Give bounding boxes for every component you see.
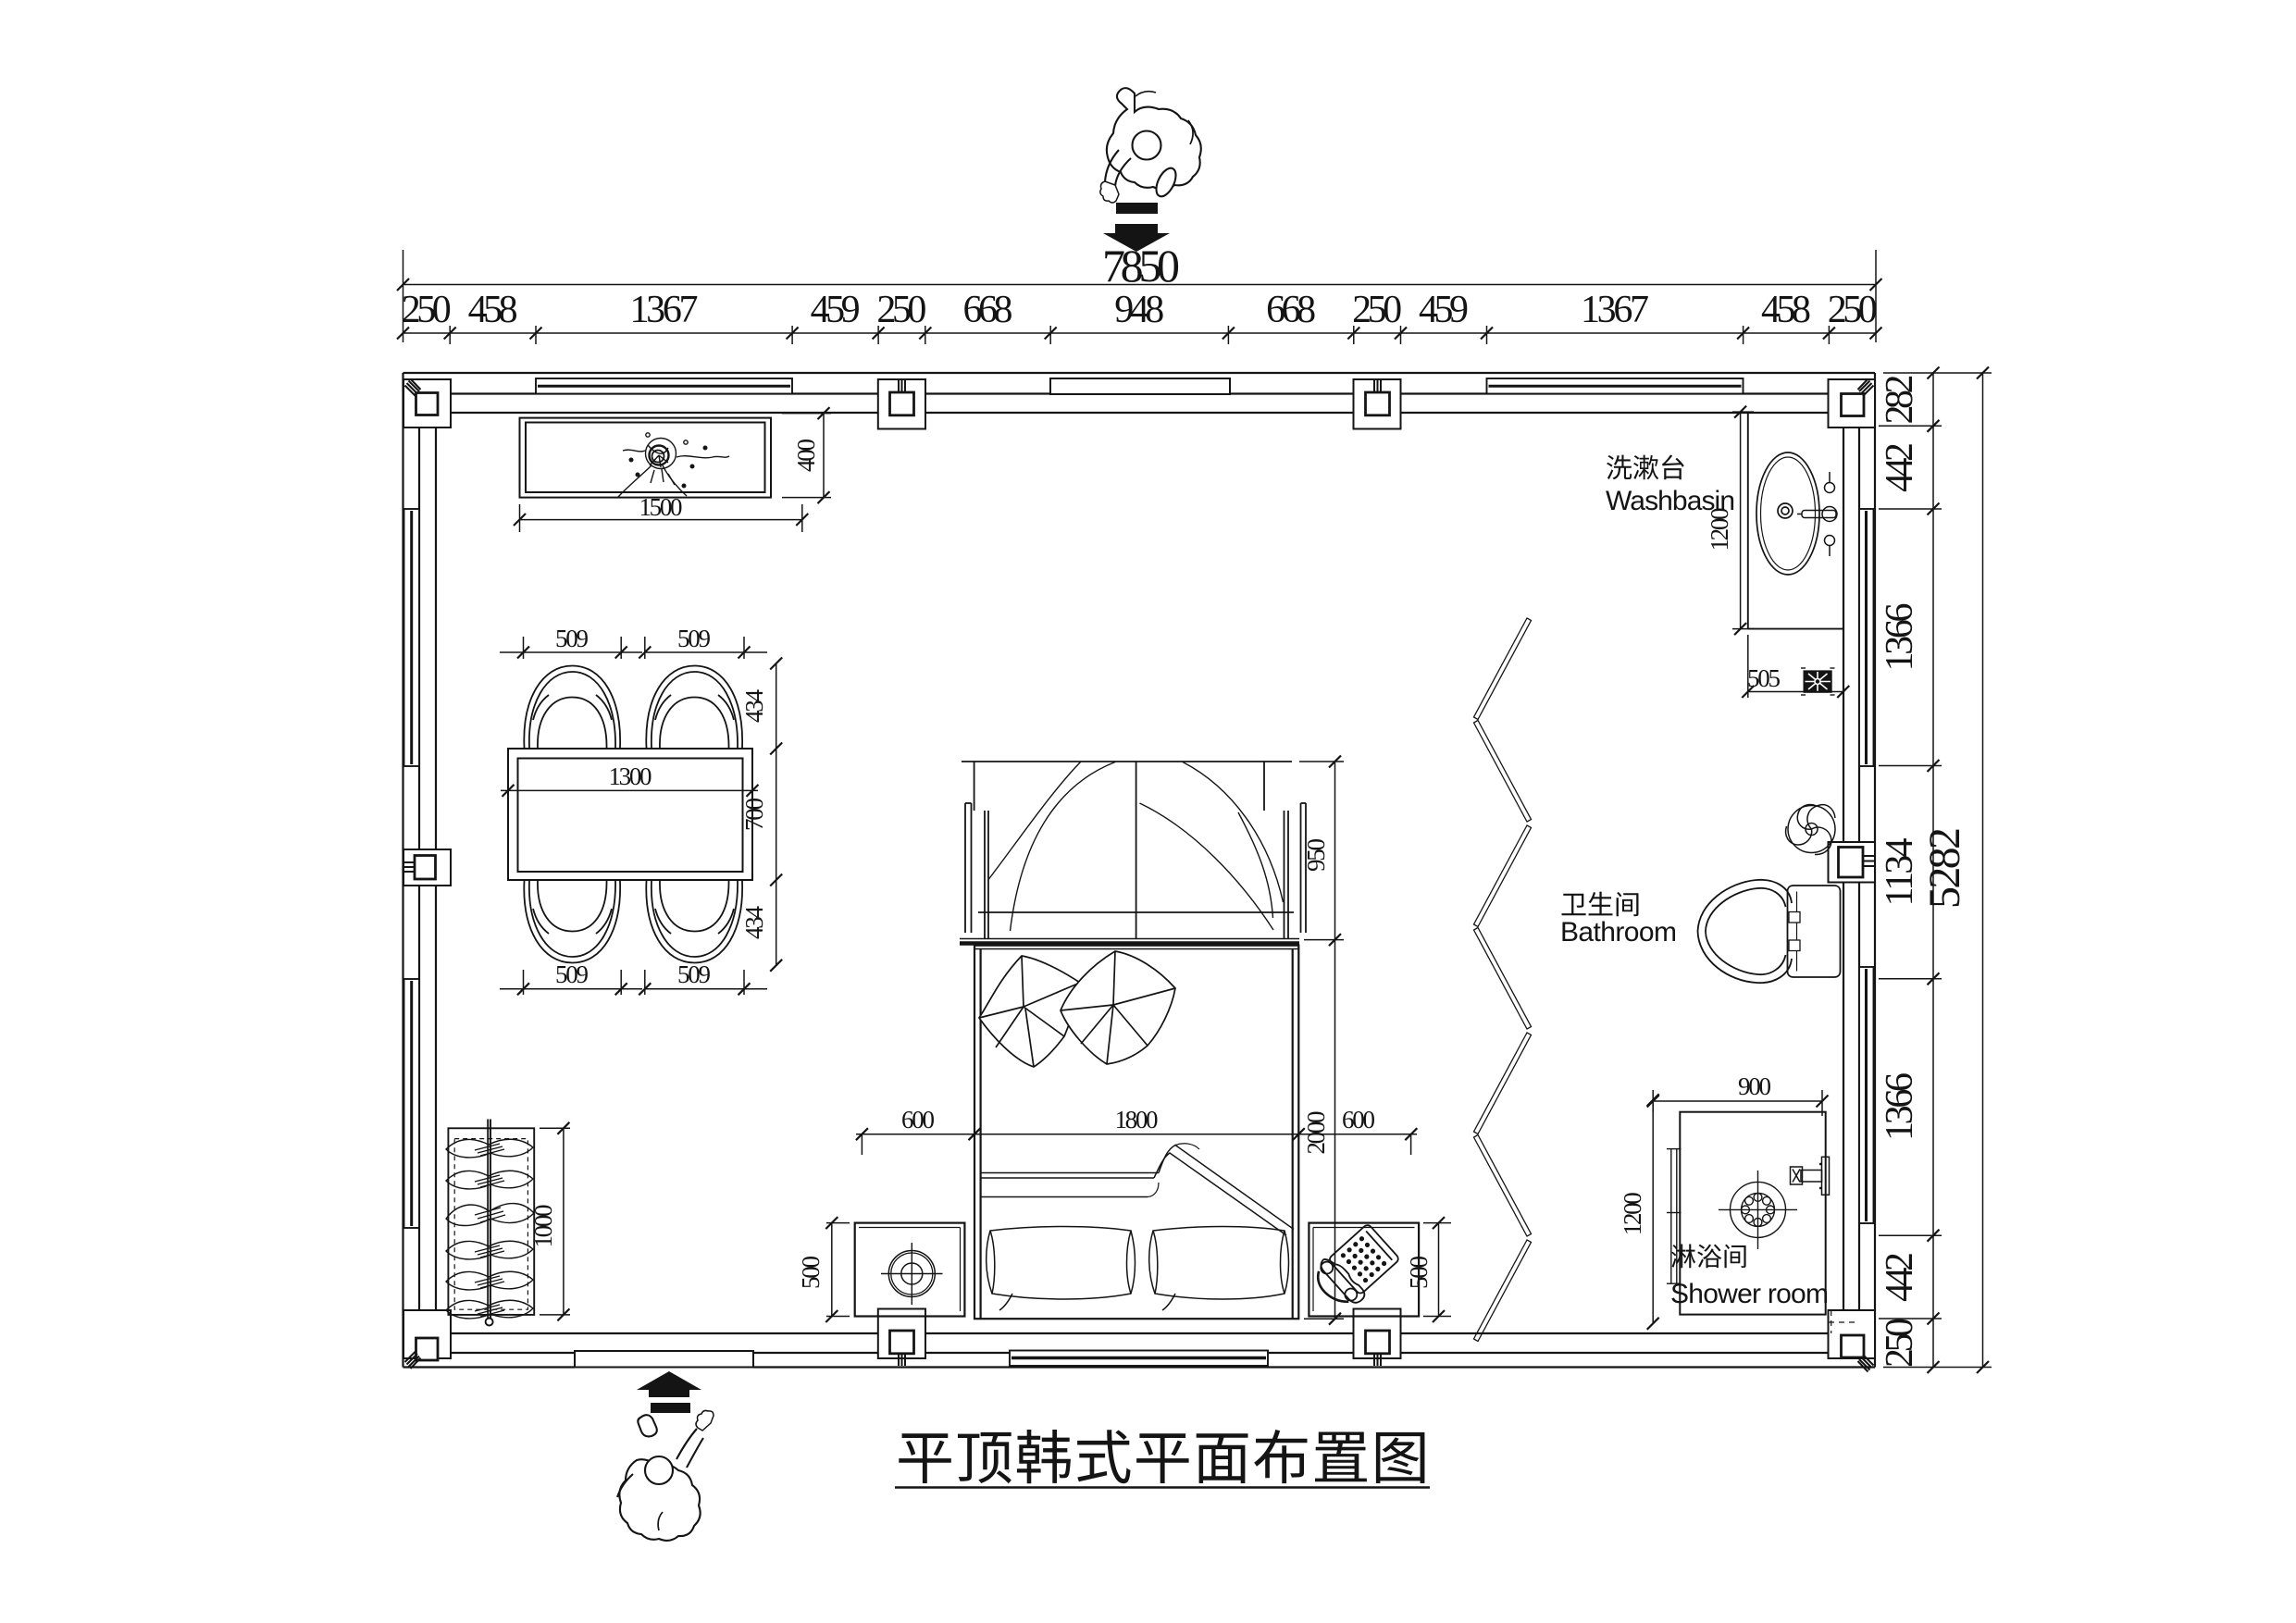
svg-text:1366: 1366: [1879, 603, 1921, 672]
svg-text:442: 442: [1879, 442, 1921, 492]
svg-text:459: 459: [1419, 289, 1469, 331]
svg-text:948: 948: [1114, 289, 1164, 331]
svg-text:250: 250: [876, 289, 926, 331]
svg-text:509: 509: [555, 960, 589, 988]
svg-text:600: 600: [1342, 1106, 1375, 1134]
svg-text:500: 500: [1405, 1256, 1433, 1289]
svg-text:250: 250: [1879, 1318, 1921, 1368]
svg-text:250: 250: [1828, 289, 1878, 331]
svg-text:250: 250: [402, 289, 452, 331]
svg-text:1800: 1800: [1115, 1106, 1159, 1134]
svg-text:1200: 1200: [1619, 1192, 1646, 1235]
svg-text:442: 442: [1879, 1252, 1921, 1302]
svg-text:434: 434: [740, 906, 768, 940]
svg-text:Shower room: Shower room: [1670, 1279, 1829, 1309]
svg-text:1366: 1366: [1879, 1072, 1921, 1141]
svg-text:250: 250: [1352, 289, 1402, 331]
svg-text:434: 434: [740, 689, 768, 724]
svg-text:1367: 1367: [1581, 289, 1649, 331]
svg-text:668: 668: [963, 289, 1013, 331]
svg-text:505: 505: [1747, 664, 1781, 692]
svg-text:459: 459: [811, 289, 861, 331]
svg-text:1367: 1367: [630, 289, 699, 331]
svg-text:500: 500: [797, 1256, 825, 1289]
svg-text:458: 458: [1761, 289, 1811, 331]
svg-text:600: 600: [901, 1106, 935, 1134]
svg-text:1300: 1300: [609, 762, 652, 790]
svg-text:458: 458: [468, 289, 518, 331]
svg-text:950: 950: [1302, 838, 1330, 872]
svg-text:1500: 1500: [639, 493, 683, 521]
svg-text:900: 900: [1738, 1072, 1771, 1100]
svg-text:509: 509: [555, 625, 589, 652]
svg-text:282: 282: [1879, 375, 1921, 425]
svg-text:Washbasin: Washbasin: [1606, 486, 1735, 516]
svg-text:668: 668: [1266, 289, 1316, 331]
svg-text:509: 509: [677, 625, 711, 652]
svg-text:5282: 5282: [1920, 827, 1969, 909]
svg-text:400: 400: [792, 439, 820, 472]
svg-text:1134: 1134: [1879, 838, 1921, 907]
svg-text:Bathroom: Bathroom: [1560, 917, 1677, 948]
svg-text:2000: 2000: [1302, 1111, 1330, 1155]
svg-text:509: 509: [677, 960, 711, 988]
svg-text:700: 700: [740, 798, 768, 831]
svg-text:1000: 1000: [529, 1205, 557, 1248]
